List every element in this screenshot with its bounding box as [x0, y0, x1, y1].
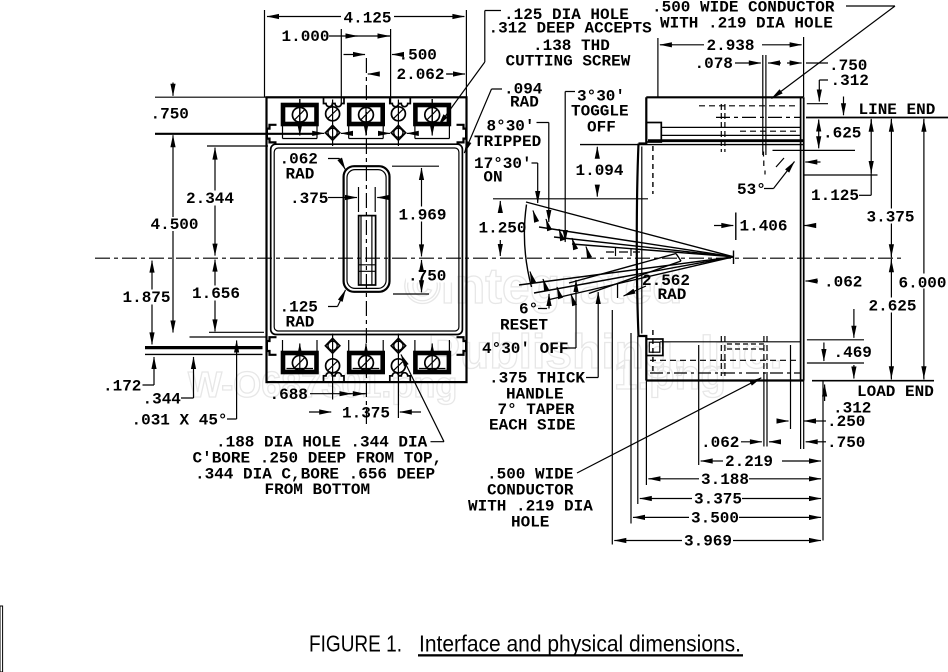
svg-text:.078: .078	[695, 55, 733, 73]
svg-text:2.219: 2.219	[725, 453, 773, 471]
svg-text:.250: .250	[827, 413, 865, 431]
svg-text:1.969: 1.969	[399, 206, 447, 224]
svg-text:RESET: RESET	[500, 317, 548, 335]
svg-text:4.125: 4.125	[344, 10, 392, 28]
svg-text:.172: .172	[103, 377, 141, 395]
svg-text:1.375: 1.375	[342, 404, 390, 422]
svg-text:1.875: 1.875	[123, 289, 171, 307]
svg-text:3.188: 3.188	[701, 471, 749, 489]
svg-text:4°30' OFF: 4°30' OFF	[482, 340, 568, 358]
svg-text:.500: .500	[399, 47, 437, 65]
svg-text:3.500: 3.500	[691, 509, 739, 527]
svg-text:1.000: 1.000	[282, 28, 330, 46]
svg-text:.625: .625	[823, 125, 861, 143]
svg-text:RAD: RAD	[510, 94, 539, 112]
svg-text:1.656: 1.656	[192, 285, 240, 303]
svg-text:1.250: 1.250	[479, 219, 527, 237]
svg-text:3.375: 3.375	[694, 491, 742, 509]
svg-text:Interface and physical dimensi: Interface and physical dimensions.	[419, 631, 741, 657]
svg-text:3.375: 3.375	[867, 208, 915, 226]
svg-text:FIGURE 1.: FIGURE 1.	[309, 631, 402, 657]
svg-text:HOLE: HOLE	[511, 514, 549, 532]
svg-text:3.969: 3.969	[684, 533, 732, 551]
svg-text:.750: .750	[408, 267, 446, 285]
svg-text:.688: .688	[270, 386, 308, 404]
svg-text:RAD: RAD	[286, 314, 315, 332]
svg-text:2.625: 2.625	[869, 297, 917, 315]
svg-text:53°: 53°	[737, 181, 766, 199]
svg-text:.312: .312	[831, 72, 869, 90]
svg-text:RAD: RAD	[286, 166, 315, 184]
svg-text:2.062: 2.062	[397, 66, 445, 84]
svg-text:WITH .219 DIA HOLE: WITH .219 DIA HOLE	[660, 14, 833, 32]
svg-text:1.125: 1.125	[811, 187, 859, 205]
svg-text:.375: .375	[290, 190, 328, 208]
svg-text:.312 DEEP ACCEPTS: .312 DEEP ACCEPTS	[489, 19, 653, 37]
svg-text:.062: .062	[824, 274, 862, 292]
svg-text:.031 X 45°: .031 X 45°	[132, 412, 228, 430]
svg-text:FROM BOTTOM: FROM BOTTOM	[265, 481, 371, 499]
svg-text:2.938: 2.938	[707, 37, 755, 55]
svg-text:.469: .469	[834, 344, 872, 362]
svg-text:LINE END: LINE END	[859, 101, 936, 119]
svg-text:1.094: 1.094	[576, 162, 624, 180]
svg-text:CUTTING SCREW: CUTTING SCREW	[506, 53, 631, 71]
svg-text:OFF: OFF	[587, 119, 616, 137]
svg-text:RAD: RAD	[658, 286, 687, 304]
svg-text:ON: ON	[483, 169, 502, 187]
svg-text:2.344: 2.344	[186, 190, 234, 208]
svg-text:©Integrated: ©Integrated	[404, 258, 683, 314]
svg-text:TRIPPED: TRIPPED	[474, 133, 541, 151]
svg-text:EACH SIDE: EACH SIDE	[489, 417, 575, 435]
svg-text:.062: .062	[701, 434, 739, 452]
svg-text:4.500: 4.500	[151, 216, 199, 234]
svg-text:1.406: 1.406	[740, 217, 788, 235]
svg-text:6.000: 6.000	[899, 274, 947, 292]
svg-text:.344: .344	[143, 390, 182, 408]
svg-text:.750: .750	[827, 434, 865, 452]
svg-text:.750: .750	[151, 106, 189, 124]
